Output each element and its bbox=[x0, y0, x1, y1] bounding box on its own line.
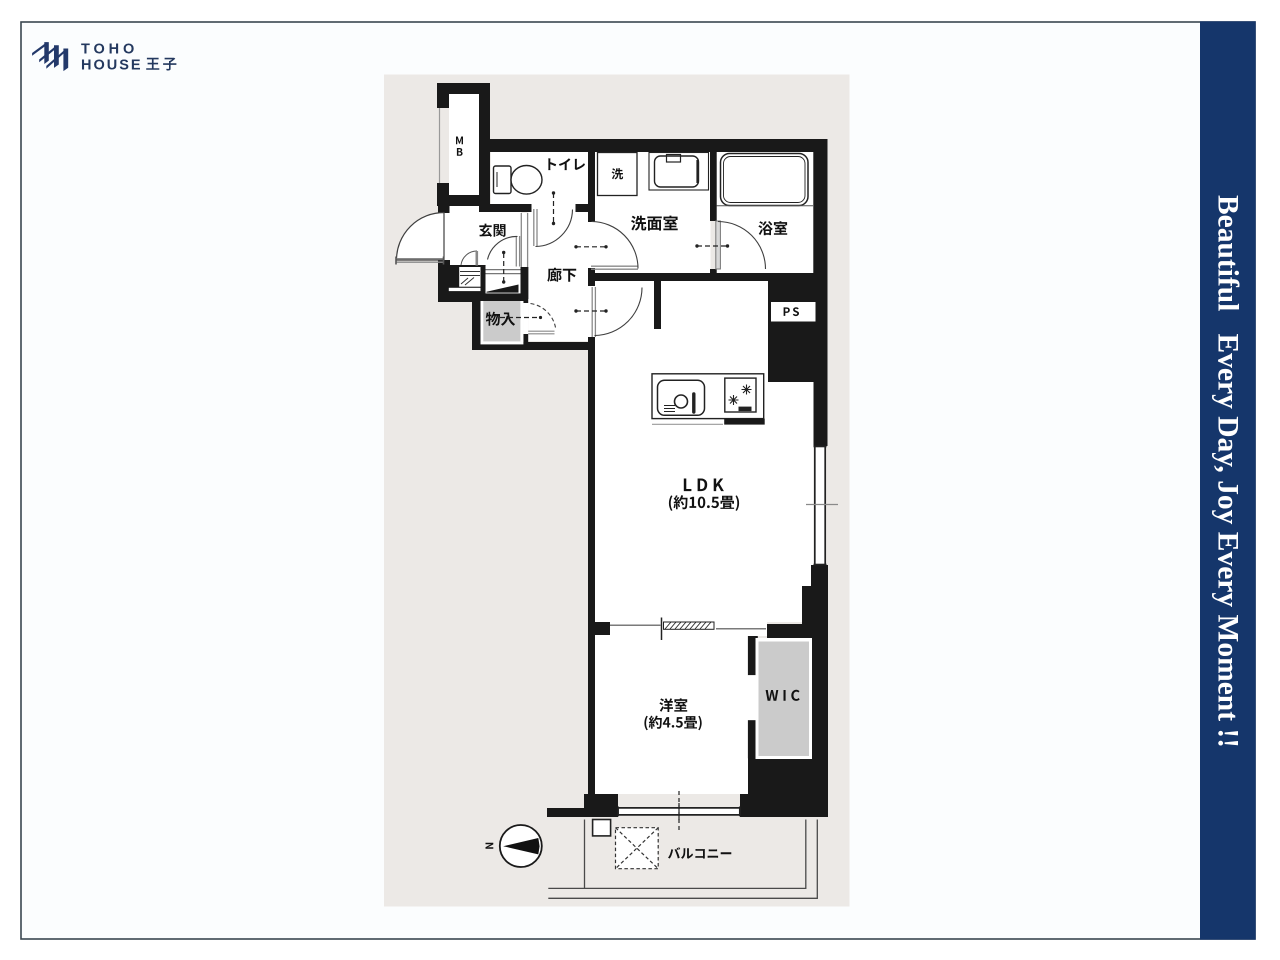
svg-text:HOUSE: HOUSE bbox=[81, 58, 143, 74]
svg-text:Beautiful Every Day, Joy Eve: Beautiful Every Day, Joy Every Moment !! bbox=[1211, 195, 1243, 748]
svg-text:TOHO: TOHO bbox=[81, 42, 138, 58]
